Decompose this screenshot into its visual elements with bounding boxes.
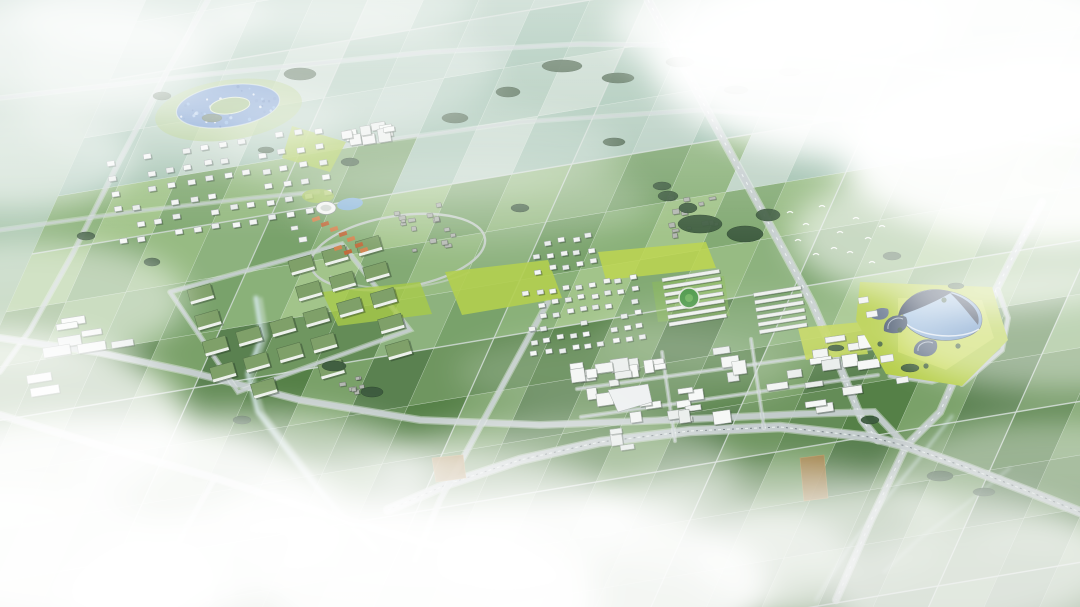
house-building <box>605 303 612 308</box>
house-building <box>614 278 621 283</box>
block-building <box>678 409 691 423</box>
house-building <box>592 294 599 299</box>
house-building <box>534 270 541 275</box>
house-building <box>544 241 551 246</box>
house-building <box>533 254 540 259</box>
house-building <box>562 285 569 290</box>
tree-cluster <box>901 364 919 372</box>
house-building <box>549 288 556 293</box>
house-building <box>522 291 529 296</box>
house-building <box>588 248 595 253</box>
house-building <box>631 299 638 304</box>
house-building <box>577 294 584 299</box>
house-building <box>540 313 547 318</box>
house-building <box>565 297 572 302</box>
aerial-render-image <box>0 0 1080 607</box>
house-building <box>538 303 545 308</box>
village-building <box>339 382 346 387</box>
house-building <box>604 290 611 295</box>
house-building <box>552 312 559 317</box>
house-building <box>573 250 580 255</box>
house-building <box>551 299 558 304</box>
cloud <box>570 460 950 580</box>
tree-cluster <box>361 387 383 397</box>
house-building <box>576 261 583 266</box>
house-building <box>549 265 556 270</box>
village-building <box>412 248 417 252</box>
house-building <box>592 304 599 309</box>
house-building <box>528 326 535 331</box>
tree-cluster <box>322 361 346 371</box>
village-building <box>355 377 359 381</box>
house-building <box>632 286 639 291</box>
house-building <box>603 278 610 283</box>
tree-cluster <box>861 416 879 424</box>
house-building <box>589 282 596 287</box>
house-building <box>580 306 587 311</box>
house-building <box>580 320 587 325</box>
house-building <box>575 285 582 290</box>
village-building <box>351 387 356 391</box>
house-building <box>547 253 554 258</box>
cloud <box>595 296 895 368</box>
house-building <box>562 265 569 270</box>
house-building <box>567 308 574 313</box>
block-building <box>712 410 731 425</box>
village-building <box>359 385 364 389</box>
house-building <box>630 274 637 279</box>
house-building <box>617 289 624 294</box>
house-building <box>561 251 568 256</box>
house-building <box>537 289 544 294</box>
house-building <box>590 258 597 263</box>
cloud <box>220 100 620 200</box>
plaza-building <box>858 296 869 303</box>
house-building <box>540 326 547 331</box>
cloud <box>72 410 432 534</box>
masterplan-rendering-canvas <box>0 0 1080 607</box>
